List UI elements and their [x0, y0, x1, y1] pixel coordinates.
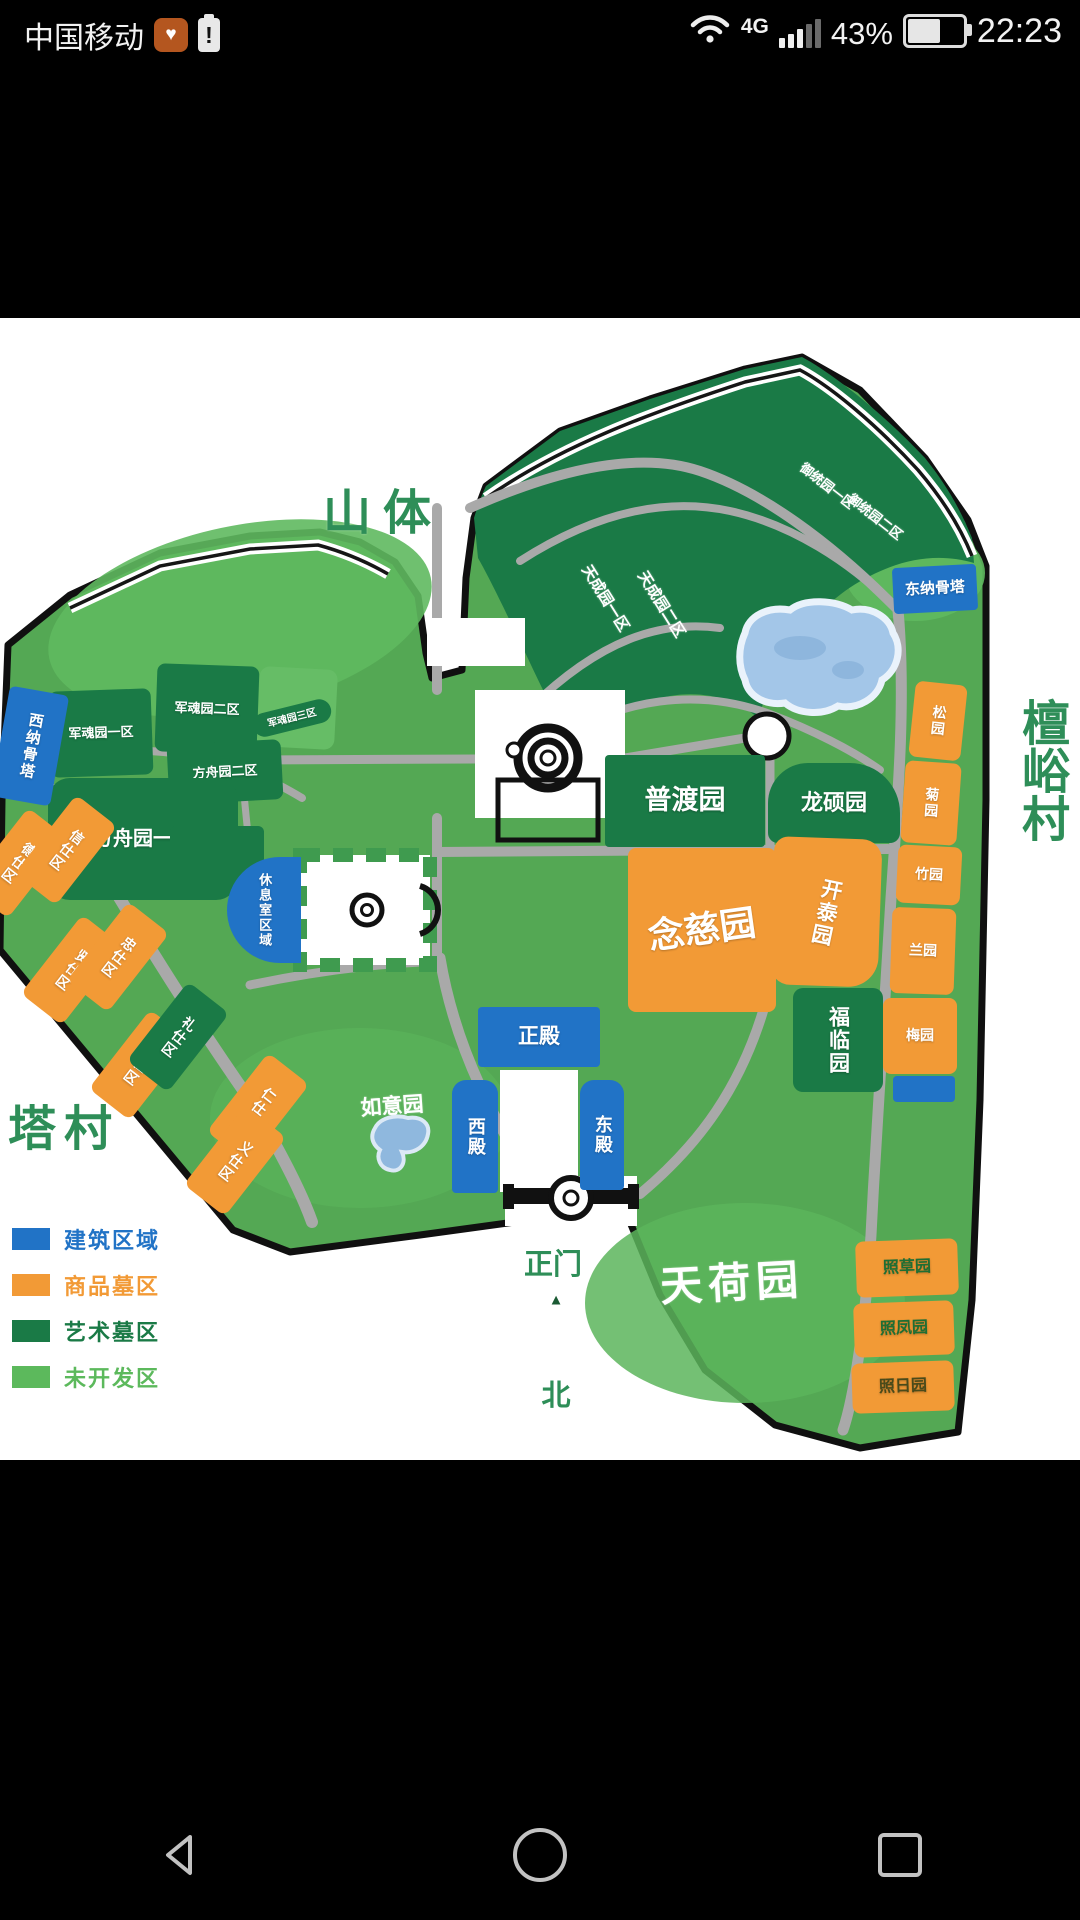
back-icon[interactable] — [120, 1815, 240, 1895]
wifi-icon — [689, 10, 731, 51]
map-label-tianhe: 天荷园 — [658, 1246, 805, 1314]
health-app-icon: ♥ — [154, 18, 188, 52]
home-icon[interactable] — [480, 1815, 600, 1895]
battery-icon — [903, 14, 967, 48]
signal-strength-icon — [779, 18, 821, 51]
map-legend: 建筑区域 商品墓区 艺术墓区 未开发区 — [12, 1223, 160, 1393]
map-label-zhengmen: 正门 — [524, 1241, 582, 1283]
map-label-ruyi: 如意园 — [360, 1088, 425, 1122]
recents-icon[interactable] — [840, 1815, 960, 1895]
legend-swatch-building — [12, 1228, 50, 1250]
legend-swatch-art — [12, 1320, 50, 1342]
map-label-north-marker: ▲ — [549, 1292, 564, 1309]
map-label-bei: 北 — [541, 1372, 570, 1414]
status-bar: 中国移动 ♥ ! 4G 43% 22:23 — [0, 0, 1080, 62]
map-label-tacun: 塔村 — [8, 1089, 120, 1159]
android-nav-bar — [0, 1790, 1080, 1920]
phone-screen: 中国移动 ♥ ! 4G 43% 22:23 — [0, 0, 1080, 1920]
legend-item-undeveloped: 未开发区 — [12, 1361, 160, 1393]
legend-item-commercial: 商品墓区 — [12, 1269, 160, 1301]
map-label-shanti: 山体 — [323, 473, 443, 543]
legend-swatch-commercial — [12, 1274, 50, 1296]
map-label-tanyucun: 檀峪村 — [1005, 698, 1075, 842]
network-type-label: 4G — [741, 15, 769, 39]
legend-label-commercial: 商品墓区 — [64, 1269, 160, 1301]
map-labels-layer: 山体檀峪村塔村天成园一区天成园二区御统园一区御统园二区如意园天荷园正门▲北 — [0, 318, 1080, 1460]
map-label-yutong2: 御统园二区 — [845, 489, 908, 544]
battery-alert-icon: ! — [198, 18, 220, 52]
park-map-image: 军魂园二区军魂园一区军魂园三区方舟园二区方舟园一区普渡园龙硕园念慈园开泰园福临园… — [0, 318, 1080, 1460]
legend-swatch-undeveloped — [12, 1366, 50, 1388]
clock-label: 22:23 — [977, 12, 1062, 51]
map-label-tiancheng2: 天成园二区 — [633, 567, 691, 642]
legend-item-art: 艺术墓区 — [12, 1315, 160, 1347]
battery-percent-label: 43% — [831, 16, 893, 52]
legend-label-art: 艺术墓区 — [64, 1315, 160, 1347]
carrier-label: 中国移动 — [24, 13, 144, 57]
legend-item-building: 建筑区域 — [12, 1223, 160, 1255]
map-label-tiancheng1: 天成园一区 — [577, 561, 635, 636]
legend-label-undeveloped: 未开发区 — [64, 1361, 160, 1393]
legend-label-building: 建筑区域 — [64, 1223, 160, 1255]
